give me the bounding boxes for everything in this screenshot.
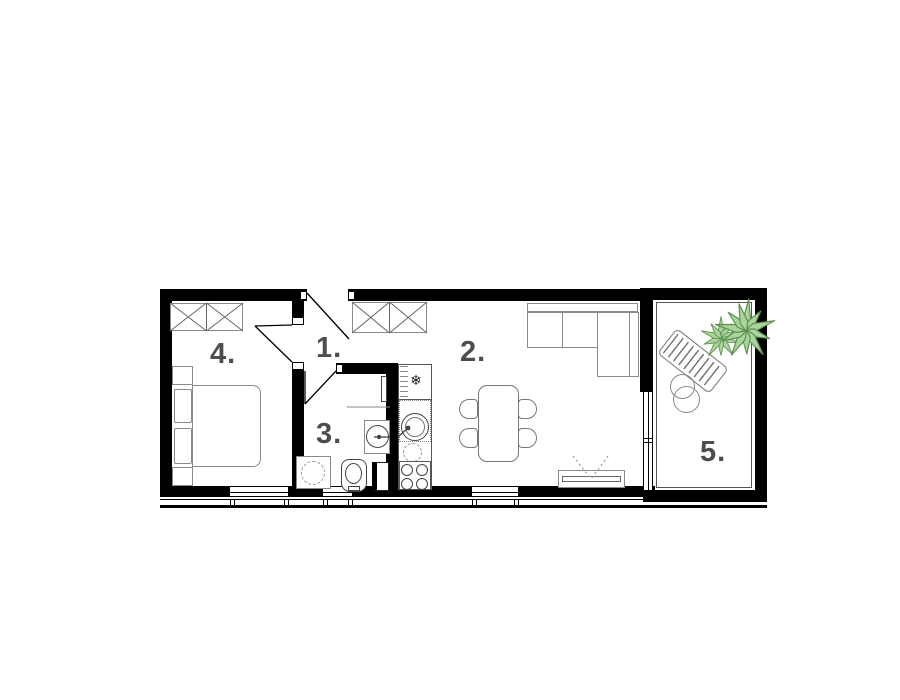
wall-top-main <box>348 289 648 301</box>
stove-burner <box>401 464 413 476</box>
living-window <box>472 486 518 497</box>
wall-top-bedroom <box>160 289 307 301</box>
sill-tick <box>348 499 349 507</box>
bathroom-duct <box>372 462 389 491</box>
sill-tick <box>472 499 473 507</box>
entry-door-jamb <box>348 291 355 300</box>
kitchen-prep-circle <box>403 443 422 462</box>
sill-tick <box>514 499 515 507</box>
sill-tick <box>323 499 324 507</box>
bedroom-door-jamb <box>292 362 304 370</box>
sill-tick <box>352 499 353 507</box>
terrace-glazing <box>643 392 653 490</box>
hall-wardrobe <box>352 302 427 333</box>
room-label-terrace: 5. <box>700 436 726 469</box>
fridge-snowflake-icon: ❄ <box>406 373 426 387</box>
floorplan-canvas: ❄ 1. 2. 3. 4. 5. <box>0 0 900 700</box>
sill-tick <box>284 499 285 507</box>
dining-table <box>478 385 519 462</box>
glazing-divider <box>644 438 652 443</box>
room-label-bathroom: 3. <box>316 418 342 451</box>
window-glass-line <box>472 492 518 493</box>
sill-tick <box>476 499 477 507</box>
sofa-chaise <box>597 312 630 377</box>
wall-terrace-top <box>643 288 767 300</box>
dining-chair <box>518 399 537 419</box>
wall-living-terrace <box>640 288 653 392</box>
toilet-base <box>348 486 360 491</box>
sofa-seat <box>527 312 563 348</box>
sill-tick <box>518 499 519 507</box>
sill-tick <box>230 499 231 507</box>
bathroom-sink-bowl <box>366 425 389 448</box>
bedroom-door-swing <box>255 326 292 362</box>
washing-machine-drum <box>301 461 325 485</box>
bathroom-radiator <box>381 376 387 402</box>
stove-burner <box>401 478 413 490</box>
toilet-bowl <box>345 463 362 484</box>
dining-chair <box>459 399 478 419</box>
sill-tick <box>327 499 328 507</box>
wall-terrace-right <box>755 288 767 500</box>
entry-door-jamb <box>300 291 307 300</box>
room-label-hall: 1. <box>316 332 342 365</box>
bedroom-door-jamb <box>292 317 304 325</box>
nightstand <box>172 467 193 486</box>
dining-chair <box>518 428 537 448</box>
room-label-living-kitchen: 2. <box>460 336 486 369</box>
bedroom-window <box>230 486 288 497</box>
pillow <box>174 389 192 423</box>
bedroom-door-leaf <box>255 325 292 326</box>
sofa-back <box>527 303 638 312</box>
double-bed <box>192 385 261 467</box>
exterior-sill-line <box>160 499 767 508</box>
nightstand <box>172 366 193 385</box>
terrace-side-table <box>673 386 700 413</box>
sill-tick <box>288 499 289 507</box>
kitchen-sink-inner <box>405 417 425 437</box>
dining-chair <box>459 428 478 448</box>
sofa-seat <box>562 312 598 348</box>
bedroom-wardrobe <box>170 303 243 331</box>
pillow <box>174 428 192 464</box>
bathroom-door-swing <box>305 371 336 404</box>
stove-burner <box>416 464 428 476</box>
window-glass-line <box>230 492 288 493</box>
stove-burner <box>416 478 428 490</box>
sill-tick <box>234 499 235 507</box>
room-label-bedroom: 4. <box>210 338 236 371</box>
sofa-side-back <box>629 312 639 377</box>
tv-panel <box>562 476 621 482</box>
bathroom-door-jamb <box>336 364 343 373</box>
